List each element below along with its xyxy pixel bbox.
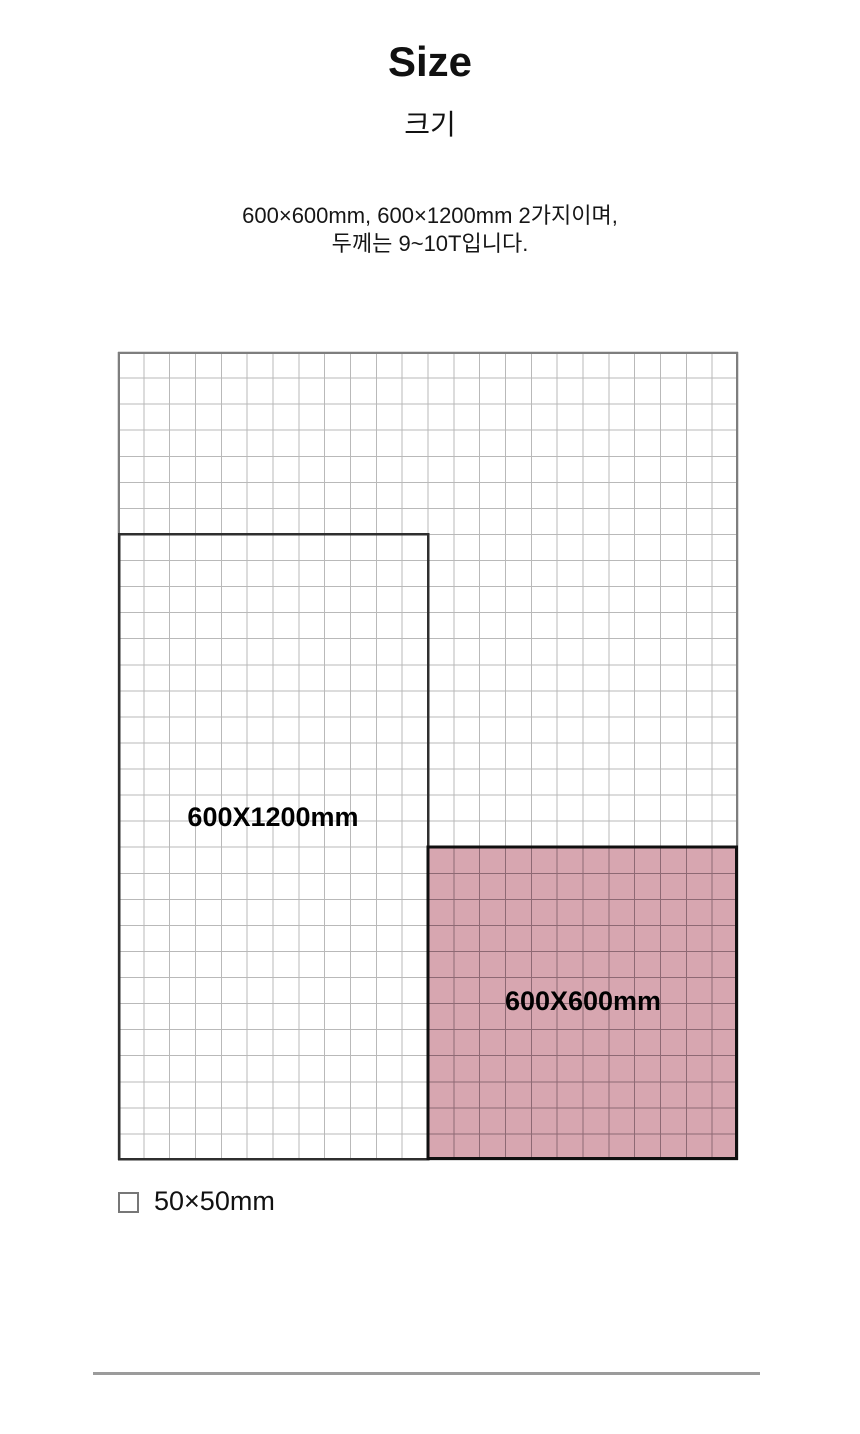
size-comparison-diagram <box>118 352 738 1160</box>
unit-cell-label: 50×50mm <box>154 1188 275 1217</box>
page-subtitle: 크기 <box>0 110 860 141</box>
size-comparison-grid <box>118 352 738 1160</box>
rect-600x600-label: 600X600mm <box>428 985 738 1017</box>
section-divider <box>93 1372 760 1375</box>
size-description-line2: 두께는 9~10T입니다. <box>0 230 860 258</box>
page-title: Size <box>0 41 860 83</box>
size-description-line1: 600×600mm, 600×1200mm 2가지이며, <box>0 202 860 230</box>
grid-unit-legend: 50×50mm <box>118 1188 275 1217</box>
size-section: Size 크기 600×600mm, 600×1200mm 2가지이며, 두께는… <box>0 0 860 1434</box>
unit-cell-swatch-icon <box>118 1192 139 1213</box>
size-description: 600×600mm, 600×1200mm 2가지이며, 두께는 9~10T입니… <box>0 202 860 258</box>
rect-600x1200-label: 600X1200mm <box>118 801 428 833</box>
